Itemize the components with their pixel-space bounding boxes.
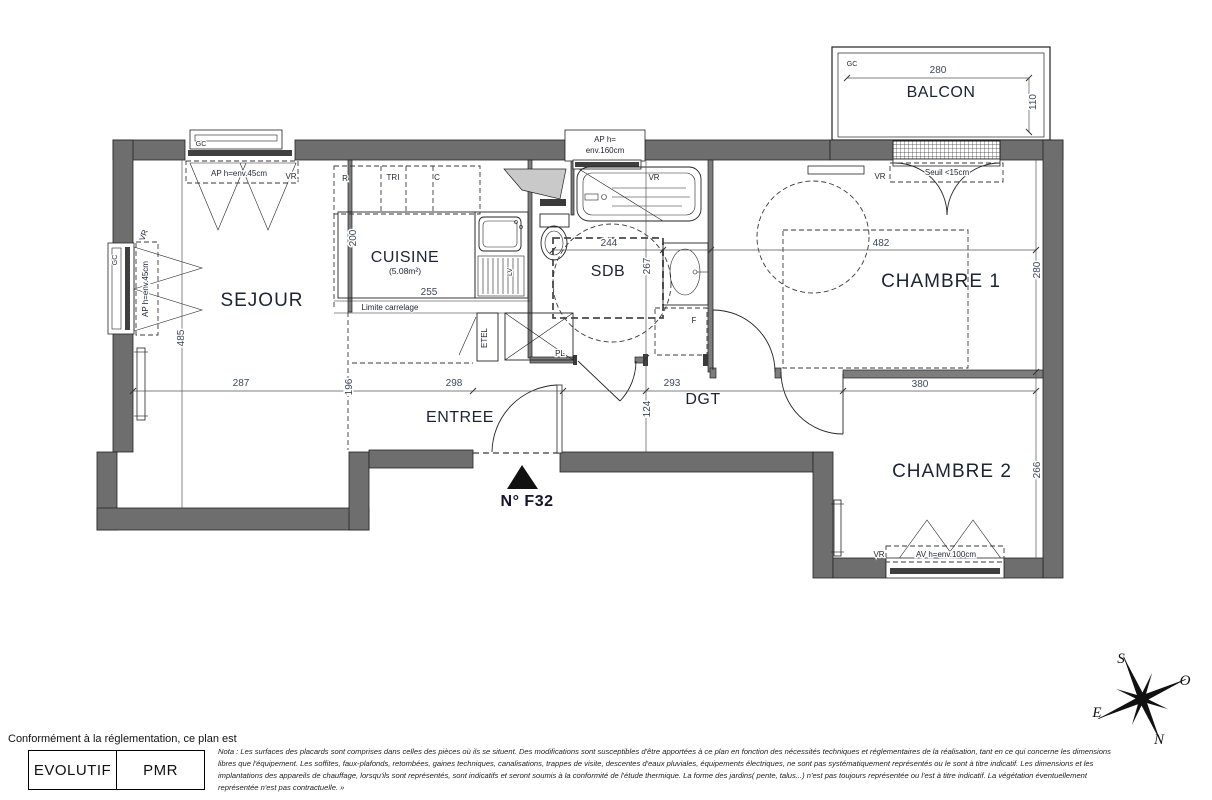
conformity-note: Conformément à la réglementation, ce pla… (8, 733, 237, 745)
limite-carrelage-label: Limite carrelage (362, 303, 419, 312)
vr-top-label: VR (285, 172, 296, 181)
balcony-height-dim: 110 (1028, 94, 1039, 110)
av100-label: AV h=env.100cm (916, 550, 976, 559)
compass-s: S (1117, 651, 1125, 667)
bathtub (577, 167, 701, 221)
vr-left-label: VR (138, 228, 150, 242)
seuil-label: Seuil <15cm (925, 168, 970, 177)
dim-196: 196 (344, 378, 355, 395)
gc-top-label: GC (196, 141, 207, 148)
vr-chambre1-label: VR (874, 172, 885, 181)
chambre2-label: CHAMBRE 2 (892, 461, 1012, 482)
chambre1-door (713, 310, 775, 372)
dim-124: 124 (642, 400, 653, 417)
cuisine-area-label: (5.08m²) (389, 266, 421, 276)
bathroom: SDB F (504, 167, 708, 355)
kitchen-lv-label: LV (507, 268, 514, 276)
dim-chambre2-h: 266 (1032, 461, 1043, 478)
floor-plan-page: GC 280 BALCON 110 (0, 0, 1212, 800)
balcony: GC 280 BALCON 110 (832, 47, 1050, 140)
balcony-door: Seuil <15cm VR (874, 141, 1003, 215)
sejour-top-window: GC AP h=env.45cm VR (186, 130, 298, 230)
entree-label: ENTREE (426, 409, 494, 426)
dim-entree-w: 298 (446, 378, 463, 389)
sejour-left-window: GC AP h=env.45cm VR (108, 228, 202, 335)
unit-number: N° F32 (501, 493, 554, 510)
outer-walls (97, 140, 1063, 578)
unit-marker: N° F32 (501, 465, 554, 510)
kitchen-sink: LV (475, 212, 528, 298)
dim-sdb-h: 267 (642, 257, 653, 274)
dim-chambre2-w: 380 (912, 379, 929, 390)
chambre2: CHAMBRE 2 (892, 461, 1012, 482)
nota-line-2: libres que l'équipement. Les soffites, f… (218, 758, 1210, 770)
dim-chambre1-h: 280 (1032, 261, 1043, 278)
compass-o: O (1180, 673, 1191, 689)
kitchen-c-label: C (434, 173, 440, 182)
compass-rose: S O E N (1091, 651, 1190, 748)
vr-chambre2-label: VR (873, 550, 884, 559)
dim-dgt-w: 293 (664, 378, 681, 389)
sejour-label: SEJOUR (220, 290, 303, 311)
interior-walls (348, 160, 1043, 378)
dim-sdb-w: 244 (601, 238, 618, 249)
nota-line-3: implantations des appareils de chauffage… (218, 770, 1210, 782)
nota-line-1: Nota : Les surfaces des placards sont co… (218, 746, 1210, 758)
ap45-top-label: AP h=env.45cm (211, 169, 267, 178)
floor-plan-drawing: GC 280 BALCON 110 (0, 0, 1212, 800)
radiators (134, 166, 864, 556)
balcony-label: BALCON (907, 84, 976, 101)
nota-paragraph: Nota : Les surfaces des placards sont co… (218, 746, 1210, 795)
dim-chambre1-w: 482 (873, 238, 890, 249)
sdb-label: SDB (591, 263, 625, 280)
kitchen-tri-label: TRI (387, 173, 400, 182)
cuisine-label: CUISINE (371, 249, 439, 266)
dim-sejour-w: 287 (233, 378, 250, 389)
vr-bath-label: VR (648, 173, 659, 182)
badge-pmr: PMR (116, 751, 204, 789)
nota-line-4: représentée n'est pas contractuelle. » (218, 782, 1210, 794)
conformity-badges: EVOLUTIF PMR (28, 750, 205, 790)
balcony-gc-label: GC (847, 61, 858, 68)
dimension-lines: 485 287 196 298 124 293 380 280 266 200 … (130, 160, 1043, 558)
dgt-label: DGT (685, 391, 720, 408)
sdb-door (578, 361, 636, 401)
chambre1: CHAMBRE 1 (757, 181, 1001, 368)
pl-label: PL (555, 349, 565, 358)
chambre2-door (781, 372, 843, 434)
dim-cuisine-h: 200 (348, 229, 359, 246)
chambre1-label: CHAMBRE 1 (881, 271, 1001, 292)
balcony-width-dim: 280 (930, 65, 947, 76)
f-label: F (692, 316, 697, 325)
dim-sejour-h: 485 (176, 329, 187, 346)
kitchen-r-label: R (342, 174, 348, 183)
compass-e: E (1091, 705, 1101, 721)
etel-label: ETEL (480, 327, 489, 348)
ap160-line1: AP h= (594, 135, 616, 144)
wc-toilet (540, 214, 569, 260)
ap160-line2: env.160cm (586, 146, 625, 155)
dim-cuisine-w: 255 (421, 287, 438, 298)
badge-evolutif: EVOLUTIF (29, 751, 116, 789)
ap45-left-label: AP h=env.45cm (141, 261, 150, 317)
chambre2-window: AV h=env.100cm VR (873, 520, 1004, 578)
gc-left-label: GC (112, 255, 119, 266)
